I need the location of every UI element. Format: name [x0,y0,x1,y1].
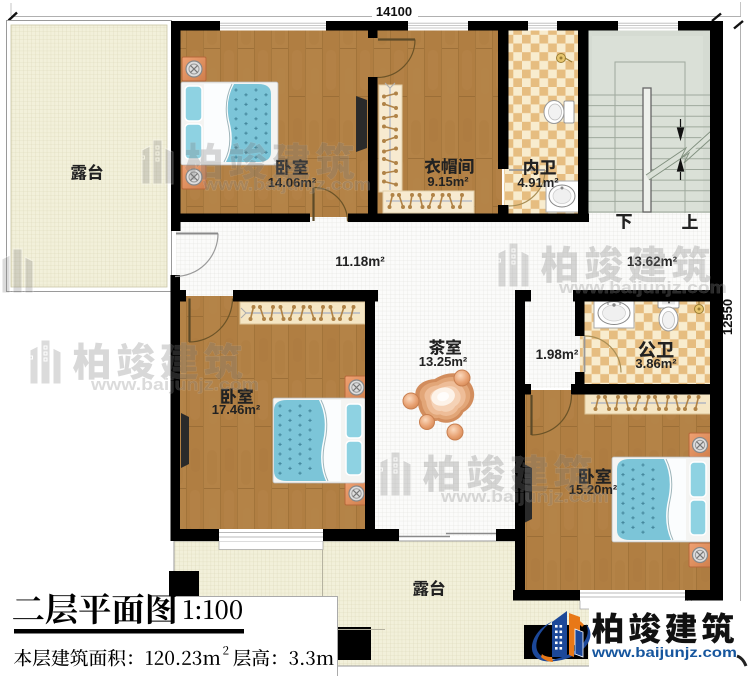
svg-text:www.baijunjz.com: www.baijunjz.com [90,376,259,394]
svg-text:3.86m²: 3.86m² [635,356,677,371]
svg-text:4.91m²: 4.91m² [517,175,559,190]
svg-text:11.18m²: 11.18m² [335,254,385,269]
svg-text:www.baijunjz.com: www.baijunjz.com [202,176,371,194]
svg-text:14100: 14100 [376,4,412,19]
svg-text:1.98m²: 1.98m² [536,347,579,362]
svg-text:www.baijunjz.com: www.baijunjz.com [558,279,727,297]
svg-text:9.15m²: 9.15m² [427,174,469,189]
svg-text:17.46m²: 17.46m² [212,402,261,417]
svg-text:13.25m²: 13.25m² [419,354,468,369]
svg-text:www.baijunjz.com: www.baijunjz.com [591,645,737,660]
svg-text:www.baijunjz.com: www.baijunjz.com [440,488,609,506]
